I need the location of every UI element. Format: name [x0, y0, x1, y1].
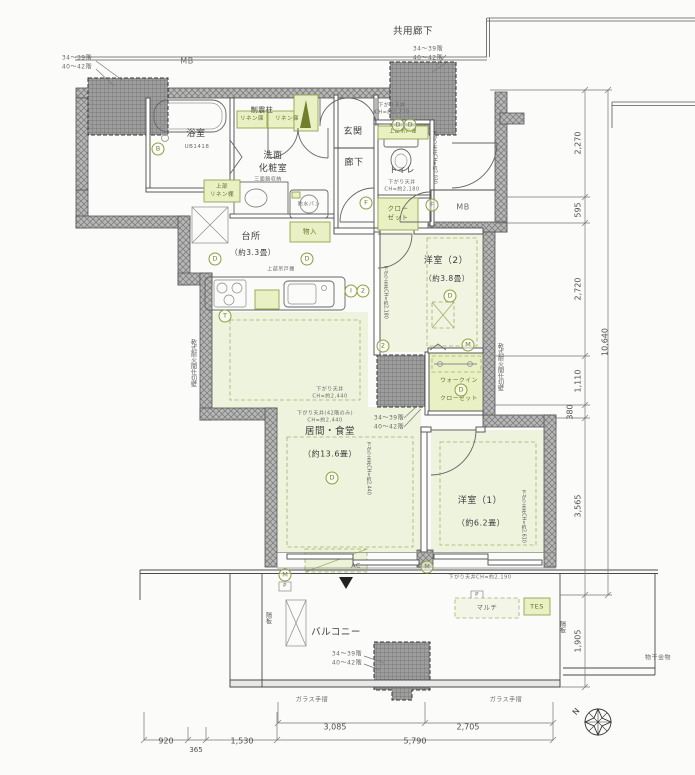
- living-dining-label: 居間・食堂: [305, 427, 355, 437]
- mirror-cabinet-label: 三面鏡収納: [254, 177, 282, 183]
- kitchen-size-label: （約3.3畳）: [230, 249, 275, 257]
- linen-label: リネン庫: [240, 116, 264, 122]
- symbol-circle: M: [462, 339, 475, 352]
- section-marker-icon: [339, 577, 353, 589]
- bedroom1-label: 洋室（1）: [458, 497, 502, 507]
- soffit-note: 下がり天井CH=約2,190: [449, 575, 512, 581]
- soffit-note: CH=約2,440: [312, 394, 347, 400]
- symbol-circle: M: [421, 561, 434, 574]
- powder-room-label: 洗面: [263, 152, 282, 162]
- pillar-label: P: [283, 583, 287, 589]
- soffit-note: 下がり天井(42階のみ): [297, 411, 353, 417]
- vanity-counter-icon: [234, 182, 288, 214]
- kitchen-label: 台所: [241, 233, 260, 243]
- dim-right-3: 1,110: [574, 370, 583, 393]
- dim-right-total: 10,640: [601, 328, 610, 356]
- dim-bottom-lower-2: 1,530: [231, 737, 254, 746]
- genkan-label: 玄関: [343, 128, 362, 138]
- bath-unit-label: UB1418: [185, 144, 210, 150]
- partition-label: 隔板: [558, 621, 567, 633]
- storage-label: 物入: [303, 228, 317, 235]
- linen-label: リネン庫: [275, 116, 299, 122]
- multi-label: マルチ: [477, 604, 498, 611]
- upper-cabinet-label: 上部吊戸棚: [267, 267, 295, 273]
- powder-room-label: 化粧室: [259, 165, 288, 175]
- soffit-note: CH=約2,440: [307, 418, 342, 424]
- dim-right-4: 380: [566, 404, 575, 419]
- symbol-circle: D: [455, 384, 468, 397]
- sink-icon: [284, 281, 334, 307]
- upper-linen-label: リネン棚: [210, 192, 234, 198]
- waterproof-pan-label: 防水パン: [298, 202, 320, 208]
- damper-column-label: 制震柱: [251, 107, 274, 115]
- closet-label: ゼット: [388, 214, 409, 221]
- dim-bottom-lower-1: 365: [189, 746, 202, 754]
- symbol-circle: D: [444, 290, 457, 303]
- bedroom1-size-label: （約6.2畳）: [457, 520, 505, 529]
- floor-range-label: 40〜42階: [413, 56, 443, 63]
- soffit-note: CH=約2,180: [384, 187, 419, 193]
- mb-label: MB: [456, 204, 469, 213]
- symbol-circle: D: [301, 253, 314, 266]
- closet-label: クロー: [388, 205, 409, 212]
- ac-label: AC: [351, 562, 361, 569]
- dim-right-2: 2,720: [574, 278, 583, 301]
- soffit-note: 下がり天井: [316, 387, 344, 393]
- bath-label: 浴室: [186, 130, 205, 140]
- symbol-circle: D: [209, 253, 222, 266]
- symbol-circle: 2: [357, 285, 370, 298]
- dim-right-1: 595: [574, 202, 583, 217]
- dim-right-6: 1,905: [574, 630, 583, 653]
- dim-bottom-upper-1: 2,705: [457, 723, 480, 732]
- floor-range-label: 34〜39階: [332, 652, 362, 659]
- glass-rail-label: ガラス手摺: [490, 698, 522, 705]
- symbol-circle: D: [404, 119, 417, 132]
- floor-range-label: 34〜39階: [374, 416, 404, 423]
- glass-rail-label: ガラス手摺: [296, 698, 328, 705]
- front-door-icon: [452, 143, 497, 188]
- dim-right-0: 2,270: [574, 132, 583, 155]
- toilet-label: トイレ: [389, 167, 415, 176]
- dishwasher-box: [255, 290, 279, 309]
- floor-range-label: 40〜42階: [374, 425, 404, 432]
- floor-range-label: 40〜42階: [62, 65, 92, 72]
- soffit-note-vertical: 下がり天井CH=約2,030: [431, 130, 438, 184]
- tes-label: TES: [530, 603, 544, 610]
- soffit-note: 下がり天井: [388, 180, 416, 186]
- bedroom2-label: 洋室（2）: [424, 257, 468, 267]
- floor-plan-canvas: 共用廊下 MB 34〜39階 40〜42階 34〜39階 40〜42階 34〜3…: [0, 0, 695, 775]
- pillar-label: P: [475, 592, 479, 598]
- symbol-circle: D: [326, 472, 339, 485]
- soffit-note: CH=約2,270: [374, 110, 409, 116]
- symbol-circle: M: [279, 569, 292, 582]
- hallway-label: 廊下: [344, 159, 363, 169]
- soffit-note-vertical: 下がり天井CH=約2,180: [382, 265, 389, 319]
- balcony-label: バルコニー: [311, 628, 361, 638]
- entry-closet-doors-icon: [320, 98, 376, 126]
- bedroom2-size-label: （約3.8畳）: [424, 275, 469, 283]
- soffit-note-vertical: 下がり天井CH=約2,610: [520, 489, 527, 543]
- upper-linen-label: 上部: [216, 184, 228, 190]
- dim-bottom-total: 5,790: [404, 737, 427, 746]
- symbol-circle: B: [152, 143, 165, 156]
- wic-label: クローゼット: [440, 396, 478, 402]
- floor-range-label: 40〜42階: [332, 661, 362, 668]
- mb-label: MB: [180, 58, 193, 67]
- symbol-circle: F: [360, 197, 373, 210]
- floor-range-label: 34〜39階: [413, 47, 443, 54]
- firewall-note: 乾式耐火間仕切壁: [496, 343, 505, 391]
- firewall-note: 乾式耐火間仕切壁: [189, 339, 198, 387]
- floor-range-label: 34〜39階: [62, 56, 92, 63]
- laundry-fitting-label: 物干金物: [645, 656, 671, 663]
- soffit-note-vertical: 下がり天井CH=約2,440: [365, 441, 372, 495]
- dim-right-5: 3,565: [574, 495, 583, 518]
- dim-bottom-lower-0: 920: [158, 737, 173, 746]
- soffit-note: 下がり天井: [378, 103, 406, 109]
- common-corridor-label: 共用廊下: [393, 27, 433, 37]
- dim-bottom-upper-0: 3,085: [324, 723, 347, 732]
- partition-label: 隔板: [264, 612, 273, 624]
- symbol-circle: 2: [377, 340, 390, 353]
- symbol-circle: T: [219, 310, 232, 323]
- compass-icon: [585, 709, 611, 735]
- living-size-label: （約13.6畳）: [303, 451, 357, 460]
- symbol-circle: F: [426, 199, 439, 212]
